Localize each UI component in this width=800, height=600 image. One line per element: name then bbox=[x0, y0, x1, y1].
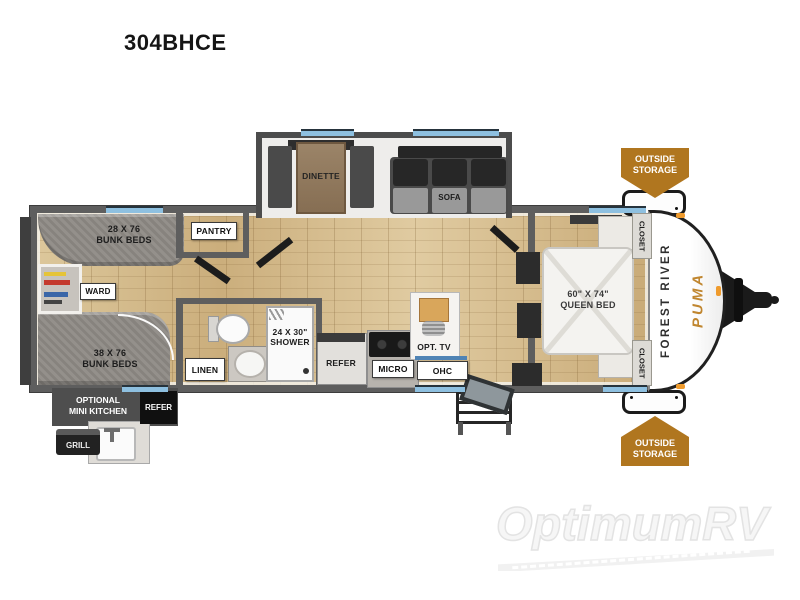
window bbox=[122, 385, 168, 392]
wall bbox=[176, 213, 183, 257]
grill: GRILL bbox=[56, 429, 100, 455]
sofa-cushion bbox=[432, 159, 467, 186]
wall bbox=[176, 298, 322, 304]
shower-name: SHOWER bbox=[270, 337, 309, 347]
mini-kitchen-label: OPTIONAL MINI KITCHEN bbox=[56, 395, 140, 416]
bunk-small-name: BUNK BEDS bbox=[96, 235, 151, 245]
pantry-label: PANTRY bbox=[191, 222, 237, 240]
floorplan-canvas: { "title": "304BHCE", "colors": { "accen… bbox=[0, 0, 800, 600]
shower-drain bbox=[303, 368, 309, 374]
faucet bbox=[104, 428, 120, 432]
sofa-seat bbox=[393, 188, 428, 213]
wall bbox=[243, 213, 249, 258]
rear-bumper bbox=[20, 217, 31, 385]
ohc-window-strip bbox=[415, 356, 467, 360]
ward-label: WARD bbox=[80, 283, 116, 300]
toilet bbox=[216, 314, 250, 344]
shower-head bbox=[269, 309, 284, 320]
closet-bottom-label: CLOSET bbox=[638, 348, 647, 378]
bunk-large-name: BUNK BEDS bbox=[82, 359, 137, 369]
bedroom-cabinet bbox=[512, 363, 542, 386]
outside-storage-top-line1: OUTSIDE bbox=[635, 154, 675, 164]
outside-storage-bottom-line1: OUTSIDE bbox=[635, 438, 675, 448]
clothes-item bbox=[44, 300, 62, 304]
shower-label: 24 X 30" SHOWER bbox=[267, 327, 313, 347]
sofa-cushion bbox=[393, 159, 428, 186]
hitch-ball bbox=[770, 296, 779, 304]
ohc-label: OHC bbox=[417, 361, 468, 380]
puma-logo: PUMA bbox=[688, 240, 708, 360]
window bbox=[415, 385, 465, 392]
shower-size: 24 X 30" bbox=[273, 327, 308, 337]
wall bbox=[176, 298, 183, 386]
micro-label: MICRO bbox=[372, 360, 414, 378]
refrigerator-top bbox=[317, 333, 365, 342]
outside-storage-banner-bottom: OUTSIDE STORAGE bbox=[621, 416, 689, 466]
stove bbox=[369, 332, 415, 357]
mini-kitchen-line1: OPTIONAL bbox=[76, 395, 120, 405]
screw-dot bbox=[675, 207, 678, 210]
exterior-sink bbox=[96, 427, 136, 461]
opt-tv-label: OPT. TV bbox=[410, 342, 458, 352]
watermark-logo: OptimumRV bbox=[496, 496, 796, 551]
bed-name: QUEEN BED bbox=[560, 300, 615, 310]
exterior-refer: REFER bbox=[140, 391, 177, 424]
hitch-jack bbox=[734, 278, 743, 322]
marker-light bbox=[716, 286, 721, 296]
step-leg bbox=[506, 422, 511, 435]
sofa-label: SOFA bbox=[432, 193, 467, 203]
screw-dot bbox=[675, 396, 678, 399]
window bbox=[106, 206, 163, 213]
step-leg bbox=[458, 422, 463, 435]
queen-bed-label: 60" X 74" QUEEN BED bbox=[546, 289, 630, 311]
closet-front-bottom: CLOSET bbox=[632, 340, 652, 386]
sofa-back bbox=[398, 146, 502, 158]
clothes-item bbox=[44, 292, 68, 297]
sofa-cushion bbox=[471, 159, 506, 186]
window bbox=[589, 206, 646, 213]
wall bbox=[176, 252, 249, 258]
bedroom-cabinet bbox=[516, 252, 540, 284]
bath-sink bbox=[234, 350, 266, 378]
clothes-item bbox=[44, 280, 70, 285]
tv-cabinet bbox=[419, 298, 449, 322]
bunk-large-label: 38 X 76 BUNK BEDS bbox=[58, 348, 162, 370]
screw-dot bbox=[630, 396, 633, 399]
marker-light bbox=[676, 213, 685, 218]
linen-label: LINEN bbox=[185, 358, 225, 381]
window bbox=[413, 129, 499, 136]
window bbox=[301, 129, 354, 136]
storage-compartment-bottom bbox=[622, 390, 686, 414]
watermark-road-dashes bbox=[512, 550, 750, 570]
bunk-large-size: 38 X 76 bbox=[94, 348, 126, 358]
clothes-item bbox=[44, 272, 66, 276]
closet-top-label: CLOSET bbox=[638, 221, 647, 251]
bed-size: 60" X 74" bbox=[567, 289, 608, 299]
mini-kitchen-line2: MINI KITCHEN bbox=[69, 406, 127, 416]
tv-swivel bbox=[422, 321, 445, 336]
page-title: 304BHCE bbox=[124, 30, 227, 56]
outside-storage-top-line2: STORAGE bbox=[633, 165, 677, 175]
outside-storage-bottom-line2: STORAGE bbox=[633, 449, 677, 459]
bedroom-cabinet bbox=[517, 303, 541, 338]
window bbox=[603, 385, 647, 392]
refer-label: REFER bbox=[317, 358, 365, 368]
sofa-seat bbox=[471, 188, 506, 213]
forest-river-logo: FOREST RIVER bbox=[655, 218, 677, 384]
dinette-label: DINETTE bbox=[286, 171, 356, 181]
bunk-small-size: 28 X 76 bbox=[108, 224, 140, 234]
marker-light bbox=[676, 384, 685, 389]
closet-front-top: CLOSET bbox=[632, 213, 652, 259]
bunk-small-label: 28 X 76 BUNK BEDS bbox=[74, 224, 174, 246]
